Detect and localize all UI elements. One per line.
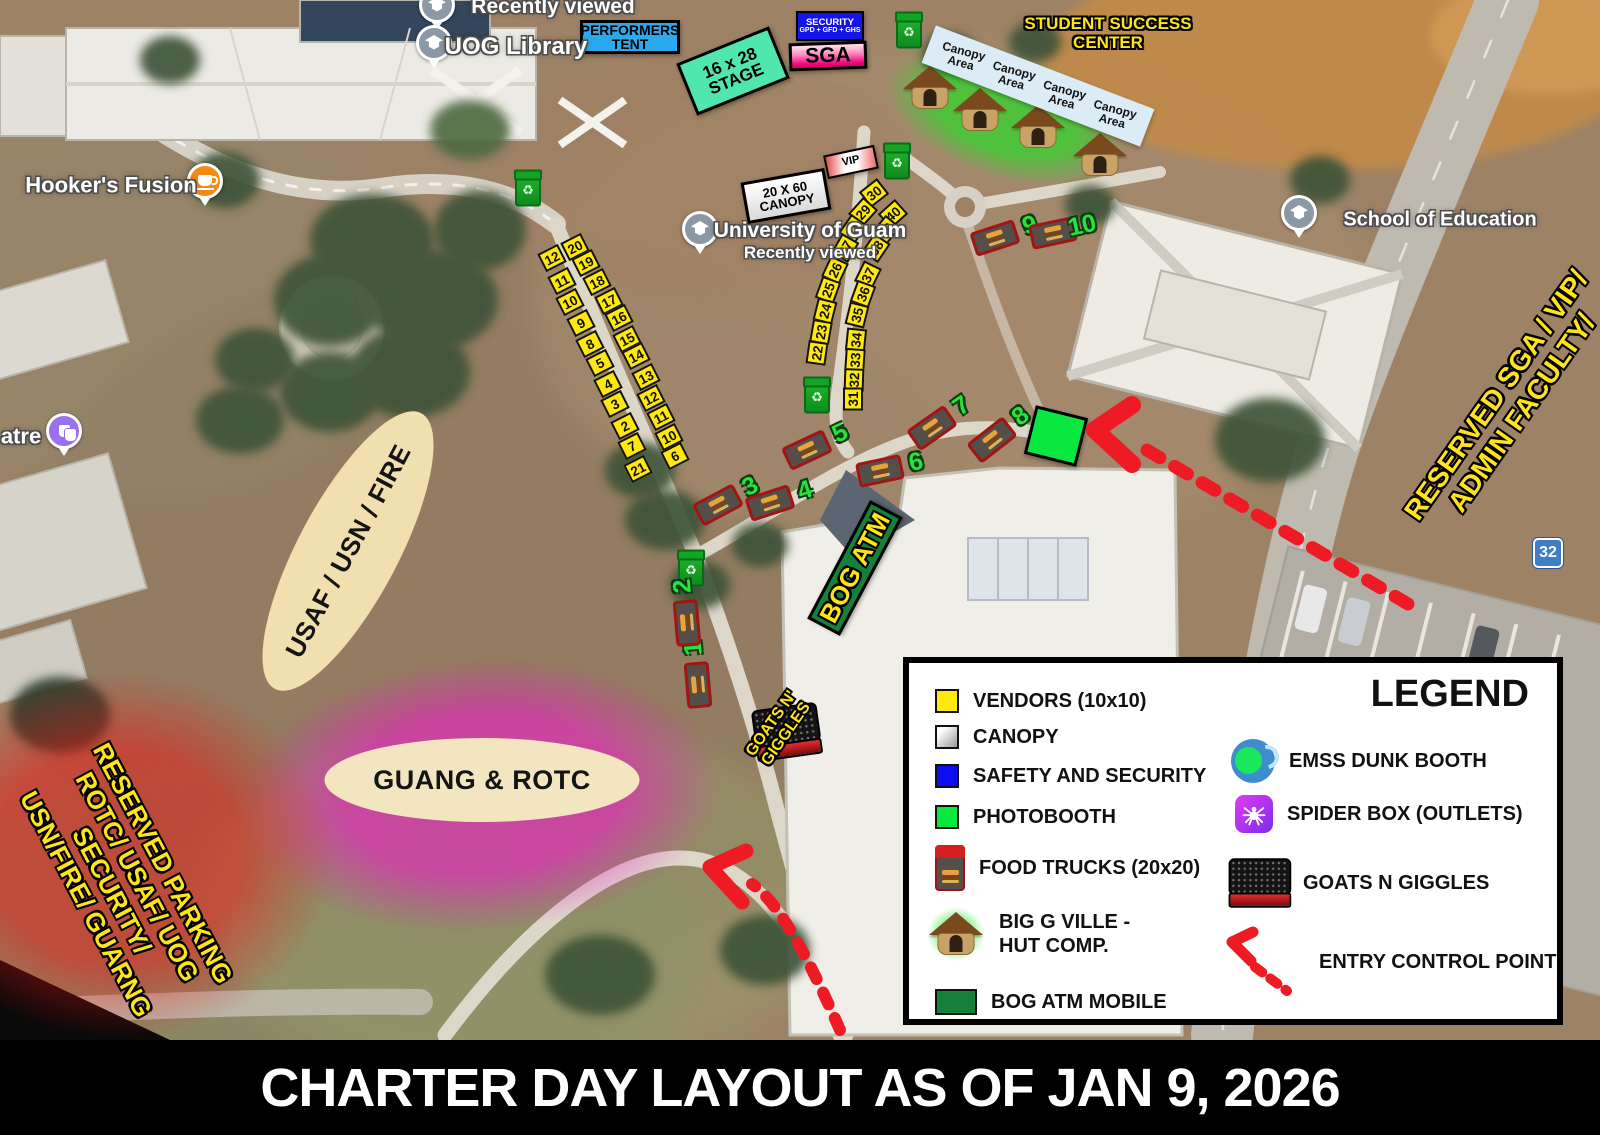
legend-item-vendors: VENDORS (10x10) [935,689,1146,713]
legend-title: LEGEND [1371,673,1529,716]
guang-rotc-label: GUANG & ROTC [373,765,591,796]
recycle-bin-icon-1: ♻ [896,16,922,49]
legend-item-bog-atm: BOG ATM MOBILE [935,989,1167,1015]
legend-panel: LEGEND VENDORS (10x10) CANOPY SAFETY AND… [903,657,1563,1025]
hut-icon [927,907,985,961]
food-truck-number: 6 [906,447,926,478]
title-bar: CHARTER DAY LAYOUT AS OF JAN 9, 2026 [0,1040,1600,1135]
safety-swatch-icon [935,764,959,788]
sga: SGA [789,41,868,72]
food-truck-3: 3 [692,483,744,527]
food-truck-icon [935,845,965,891]
legend-item-entry-control: ENTRY CONTROL POINT [1221,925,1556,999]
spider-glyph [1240,800,1268,828]
legend-item-photobooth: PHOTOBOOTH [935,805,1116,829]
vendor-slot-35: 35 [845,301,870,328]
food-truck-1: 1 [684,661,713,709]
canopy-area-label: CanopyArea [988,59,1037,94]
bog-atm-swatch-icon [935,989,977,1015]
legend-item-food-trucks: FOOD TRUCKS (20x20) [935,845,1200,891]
canopy-area-label: CanopyArea [1039,78,1088,113]
photobooth-swatch-icon [935,805,959,829]
school-of-education-pin [1282,194,1316,238]
food-truck-number: 2 [668,578,698,594]
canopy-area-label: CanopyArea [938,40,987,75]
performers-tent: PERFORMERSTENT [580,20,680,54]
spider-box-icon [1235,795,1273,833]
guang-rotc: GUANG & ROTC [325,738,640,822]
recycle-bin-icon-3: ♻ [515,174,541,207]
vip: VIP [823,145,879,179]
entry-arrow-icon [1221,925,1305,999]
hut-icon-4 [1075,133,1125,177]
food-truck-5: 5 [781,429,833,471]
food-truck-8: 8 [966,416,1018,464]
canopy-20x60: 20 X 60CANOPY [740,168,831,224]
food-truck-9: 9 [969,219,1020,257]
food-truck-number: 4 [794,475,816,507]
university-of-guam: University of GuamRecently viewed [714,219,907,263]
university-of-guam-pin [683,210,717,254]
reserved-sga-vip: RESERVED SGA / VIP/ADMIN FACULTY/ [1398,264,1600,543]
theatre-partial: atre [1,423,41,448]
hut-icon-2 [955,88,1005,132]
legend-item-dunk-booth: EMSS DUNK BOOTH [1231,739,1487,783]
school-pin-icon [428,0,446,12]
student-success-center: STUDENT SUCCESSCENTER [1024,14,1191,52]
recently-viewed-top: Recently viewed [471,0,634,19]
food-truck-number: 10 [1066,209,1099,243]
photobooth-square [1024,405,1088,467]
school-pin-icon [691,221,709,236]
legend-item-big-g-ville: BIG G VILLE - HUT COMP. [927,907,1130,961]
legend-item-spider-box: SPIDER BOX (OUTLETS) [1235,795,1523,833]
route-32: 32 [1533,538,1563,568]
dunk-booth-icon [1231,739,1275,783]
canopy-area-label: CanopyArea [1089,98,1138,133]
vendor-slot-31: 31 [843,388,863,411]
map-title: CHARTER DAY LAYOUT AS OF JAN 9, 2026 [260,1057,1339,1119]
food-truck-number: 5 [828,417,853,449]
theater-pin-icon [59,425,70,437]
canopy-swatch-icon [935,725,959,749]
vendor-slot-22: 22 [805,340,828,366]
school-pin-icon [1290,205,1308,220]
security-gpd-gfd-ghs: SECURITYGPD + GFD + GHS [796,11,864,41]
food-truck-2: 2 [673,599,702,647]
food-truck-7: 7 [906,405,958,452]
recycle-bin-icon-2: ♻ [884,147,910,180]
recycle-bin-icon-4: ♻ [804,381,830,414]
school-pin-icon [425,35,443,50]
food-truck-6: 6 [855,454,905,488]
theatre-partial-pin [47,412,81,456]
legend-item-goats: GOATS N GIGGLES [1227,857,1489,909]
cafe-pin-icon [198,175,212,186]
charter-day-map: USAF / USN / FIREGUANG & ROTC♻♻♻♻♻PERFOR… [0,0,1600,1135]
food-truck-number: 7 [948,390,976,422]
vendor-swatch-icon [935,689,959,713]
legend-item-canopy: CANOPY [935,725,1059,749]
uog-library: UOG Library [445,33,588,61]
bog-atm: BOG ATM [807,500,903,636]
school-of-education: School of Education [1343,209,1536,232]
goats-n-giggles-icon [1229,858,1288,907]
legend-item-safety: SAFETY AND SECURITY [935,764,1206,788]
stage-16x28: 16 x 28STAGE [676,26,790,115]
hookers-fusion: Hooker's Fusion [25,172,196,197]
